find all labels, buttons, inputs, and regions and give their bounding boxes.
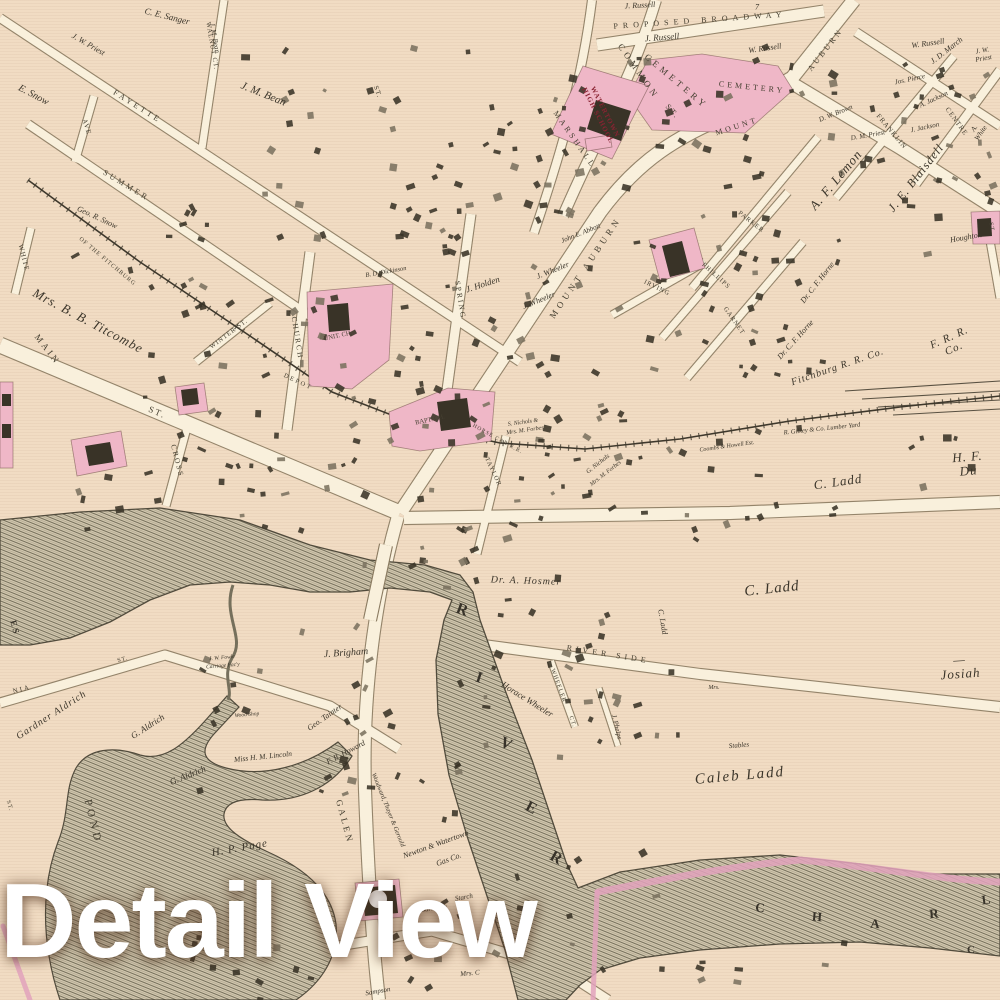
building — [574, 856, 583, 865]
street-fill-walnut-ct — [202, 0, 224, 148]
building — [662, 119, 670, 125]
building — [396, 353, 406, 362]
building — [274, 432, 279, 438]
building — [464, 525, 473, 532]
building — [986, 151, 992, 159]
building — [341, 463, 346, 467]
building — [545, 127, 554, 136]
building — [732, 211, 737, 217]
building — [524, 301, 531, 308]
building — [743, 155, 752, 163]
building — [693, 536, 700, 542]
building — [80, 495, 85, 503]
building — [762, 43, 770, 51]
building — [751, 328, 759, 334]
building — [575, 281, 583, 289]
building — [249, 463, 253, 468]
building — [707, 466, 714, 473]
building — [263, 353, 268, 358]
building — [415, 387, 425, 396]
building — [353, 438, 361, 445]
building — [745, 516, 750, 521]
building — [773, 229, 781, 238]
building — [723, 184, 732, 190]
building — [530, 263, 537, 270]
building — [829, 79, 838, 87]
building — [406, 206, 413, 212]
building — [276, 233, 284, 241]
building — [600, 160, 606, 166]
building — [71, 252, 80, 259]
building — [786, 258, 795, 263]
building — [502, 534, 512, 543]
building — [328, 463, 337, 470]
building — [633, 702, 643, 709]
building — [870, 105, 876, 112]
building — [505, 598, 512, 602]
building — [452, 286, 457, 291]
building — [796, 425, 802, 432]
unitarian-church-building — [327, 303, 350, 332]
building — [550, 354, 560, 362]
building — [604, 612, 611, 619]
street-fill-taylor-st — [477, 436, 506, 554]
building — [225, 299, 235, 308]
building — [659, 966, 665, 972]
building — [788, 360, 793, 364]
building — [512, 147, 517, 152]
atlas-map-page: PROPOSED BROADWAYCOMMONST.MARSHALLMOUNT … — [0, 0, 1000, 1000]
building — [978, 140, 982, 146]
building — [943, 434, 952, 441]
building — [525, 292, 531, 300]
building — [75, 488, 82, 496]
building — [426, 331, 434, 337]
building — [822, 963, 829, 968]
building — [523, 199, 533, 209]
building — [419, 381, 424, 387]
building — [299, 628, 305, 636]
building — [584, 699, 593, 704]
building — [923, 251, 932, 258]
building — [633, 732, 642, 740]
building — [697, 976, 706, 983]
building — [543, 405, 552, 414]
street-fill-white-st — [15, 228, 31, 294]
building — [582, 493, 592, 499]
building — [286, 310, 290, 316]
street-fill-proposed-broadway — [597, 11, 824, 45]
building — [197, 446, 206, 452]
building — [691, 526, 698, 533]
building — [617, 410, 624, 418]
building — [429, 488, 434, 493]
building — [454, 181, 463, 189]
building — [828, 69, 839, 80]
building — [526, 352, 536, 361]
building — [347, 777, 357, 785]
building — [383, 708, 394, 718]
building — [984, 190, 991, 196]
building — [261, 372, 270, 379]
building — [181, 309, 190, 318]
building — [144, 470, 153, 476]
building — [742, 134, 749, 142]
building — [483, 452, 487, 458]
building — [488, 316, 497, 324]
building — [641, 511, 648, 515]
building — [184, 209, 191, 217]
building — [633, 240, 640, 244]
building — [166, 235, 172, 238]
building — [919, 435, 924, 441]
building — [255, 410, 261, 417]
building — [452, 810, 458, 816]
building — [448, 439, 455, 446]
building — [794, 278, 802, 286]
main-st-building-b — [181, 388, 199, 406]
building — [733, 262, 742, 271]
building — [235, 463, 240, 469]
building — [241, 54, 250, 60]
building — [490, 325, 497, 333]
building — [424, 983, 433, 991]
building — [489, 104, 495, 111]
building — [429, 208, 437, 214]
building — [457, 208, 462, 214]
building — [415, 356, 421, 362]
building — [709, 305, 715, 313]
building — [819, 359, 826, 364]
building — [188, 277, 194, 282]
building — [298, 527, 305, 534]
building — [535, 361, 544, 369]
building — [734, 967, 743, 972]
building — [902, 197, 908, 203]
building — [576, 648, 582, 654]
building — [702, 145, 711, 153]
building — [860, 161, 866, 169]
building — [406, 183, 416, 191]
building — [545, 452, 550, 456]
building — [300, 360, 304, 367]
building — [313, 234, 321, 242]
building — [128, 267, 134, 274]
building — [668, 669, 674, 675]
street-fill-school-st-ne — [856, 32, 1000, 126]
building — [115, 505, 124, 513]
building — [425, 222, 433, 230]
building — [893, 91, 900, 98]
street-fill-parker-st — [692, 137, 818, 288]
building — [439, 227, 446, 233]
building — [257, 668, 263, 674]
building — [315, 297, 324, 305]
building — [322, 88, 327, 92]
building — [666, 446, 673, 454]
building — [546, 445, 551, 449]
building — [989, 182, 998, 190]
building — [733, 979, 741, 985]
building — [702, 339, 709, 345]
building — [266, 145, 276, 155]
building — [776, 337, 785, 344]
building — [739, 365, 743, 369]
building — [538, 439, 545, 443]
building — [362, 562, 366, 568]
building — [225, 463, 233, 469]
building — [240, 514, 245, 518]
building — [351, 681, 361, 690]
building — [367, 785, 376, 790]
building — [387, 723, 395, 730]
building — [838, 169, 845, 176]
building — [286, 120, 293, 127]
building — [230, 682, 236, 688]
street-fill-cross-st — [166, 428, 187, 506]
building — [507, 121, 513, 127]
building — [612, 693, 622, 700]
building — [564, 664, 573, 671]
building — [395, 772, 401, 780]
street-fill-riverside-st — [461, 642, 1000, 707]
building — [493, 192, 503, 202]
building — [443, 585, 451, 590]
building — [349, 421, 358, 429]
building — [598, 403, 605, 408]
building — [543, 425, 552, 433]
building — [587, 265, 593, 271]
building — [752, 270, 758, 275]
building — [420, 545, 424, 550]
building — [550, 491, 555, 496]
building — [276, 183, 282, 189]
building — [908, 444, 915, 450]
building — [442, 248, 450, 255]
building — [836, 238, 841, 242]
building — [301, 322, 308, 327]
building — [841, 940, 848, 946]
building — [104, 474, 113, 481]
building — [774, 372, 781, 377]
building — [557, 754, 563, 760]
building — [974, 172, 981, 180]
building — [591, 167, 600, 176]
overlay-title: Detail View — [0, 868, 536, 974]
left-edge-building-b — [2, 424, 11, 438]
building — [442, 816, 447, 822]
building — [565, 699, 571, 704]
building — [288, 89, 295, 96]
building — [422, 423, 429, 428]
building — [378, 106, 387, 114]
building — [655, 732, 660, 738]
building — [600, 408, 609, 416]
building — [598, 633, 605, 640]
building — [536, 155, 543, 163]
building — [716, 438, 723, 445]
building — [919, 94, 924, 100]
building — [453, 233, 461, 241]
street-fill-church-st — [287, 252, 310, 430]
building — [588, 716, 594, 723]
building — [262, 192, 268, 197]
building — [368, 398, 376, 405]
building — [832, 91, 838, 94]
building — [143, 395, 147, 398]
building — [829, 513, 836, 517]
building — [637, 57, 642, 60]
building — [436, 163, 444, 170]
main-st-building-a — [85, 442, 114, 466]
building — [282, 47, 289, 55]
building — [219, 479, 225, 486]
building — [482, 141, 489, 147]
building — [389, 163, 397, 171]
building — [158, 375, 166, 384]
building — [591, 368, 600, 376]
building — [241, 706, 251, 715]
building — [674, 330, 682, 338]
building — [907, 204, 916, 209]
building — [685, 513, 689, 517]
building — [771, 257, 779, 263]
building — [750, 364, 758, 372]
building — [655, 144, 664, 149]
building — [448, 142, 454, 148]
building — [417, 496, 424, 503]
building — [442, 244, 447, 248]
building — [762, 215, 770, 222]
building — [148, 352, 155, 358]
building — [199, 283, 208, 291]
street-fill-ave — [75, 96, 94, 162]
left-edge-building-a — [2, 394, 11, 406]
building — [646, 335, 655, 343]
building — [260, 492, 265, 497]
building — [484, 695, 488, 699]
building — [723, 520, 731, 529]
building — [749, 339, 756, 347]
building — [562, 106, 566, 111]
building — [544, 183, 551, 188]
building — [676, 732, 680, 737]
building — [661, 278, 667, 282]
building — [931, 135, 939, 141]
building — [247, 488, 255, 494]
building — [548, 473, 555, 479]
building — [393, 96, 402, 105]
building — [638, 456, 643, 460]
building — [445, 284, 450, 288]
building — [597, 739, 603, 745]
building — [701, 214, 706, 219]
building — [419, 778, 425, 784]
building — [394, 370, 401, 377]
building — [573, 457, 581, 461]
building — [716, 245, 722, 252]
building — [342, 791, 349, 796]
building — [699, 960, 705, 964]
building — [281, 491, 290, 496]
building — [390, 203, 397, 210]
building — [281, 95, 290, 104]
building — [510, 163, 519, 172]
building — [148, 284, 155, 291]
building — [968, 464, 976, 471]
building — [353, 623, 360, 631]
building — [519, 476, 525, 481]
building — [390, 126, 397, 133]
building — [324, 485, 330, 492]
building — [180, 282, 187, 289]
building — [366, 87, 374, 95]
building — [498, 613, 504, 618]
building — [537, 108, 543, 114]
building — [539, 202, 547, 208]
building — [351, 457, 357, 464]
building — [755, 474, 763, 478]
building — [466, 49, 471, 54]
building — [395, 234, 404, 240]
building — [598, 618, 605, 626]
building — [528, 608, 536, 617]
building — [619, 419, 627, 422]
building — [154, 497, 162, 503]
building — [835, 259, 841, 266]
building — [295, 201, 304, 209]
baptist-church-building — [437, 398, 471, 431]
building — [431, 174, 438, 180]
building — [319, 789, 324, 794]
building — [596, 415, 602, 422]
building — [218, 362, 227, 369]
building — [214, 411, 221, 419]
building — [650, 366, 659, 372]
building — [783, 324, 789, 331]
building — [544, 371, 552, 379]
building — [695, 964, 704, 971]
building — [934, 213, 943, 221]
cemetery-grounds — [628, 54, 793, 133]
building — [277, 457, 285, 461]
building — [413, 213, 422, 222]
building — [205, 223, 209, 227]
building — [448, 234, 454, 239]
building — [497, 128, 506, 136]
building — [423, 560, 428, 564]
building — [561, 484, 565, 489]
building — [409, 345, 415, 351]
right-edge-church-building — [977, 218, 992, 237]
building — [716, 91, 724, 98]
building — [739, 250, 748, 257]
building — [410, 45, 418, 52]
building — [465, 202, 473, 208]
building — [806, 367, 812, 374]
building — [626, 459, 632, 465]
building — [901, 117, 907, 124]
building — [400, 304, 408, 309]
building — [614, 453, 624, 462]
building — [638, 848, 648, 858]
building — [554, 574, 561, 582]
building — [533, 180, 541, 188]
building — [514, 499, 521, 503]
building — [314, 147, 321, 155]
building — [828, 133, 836, 141]
building — [493, 149, 501, 154]
